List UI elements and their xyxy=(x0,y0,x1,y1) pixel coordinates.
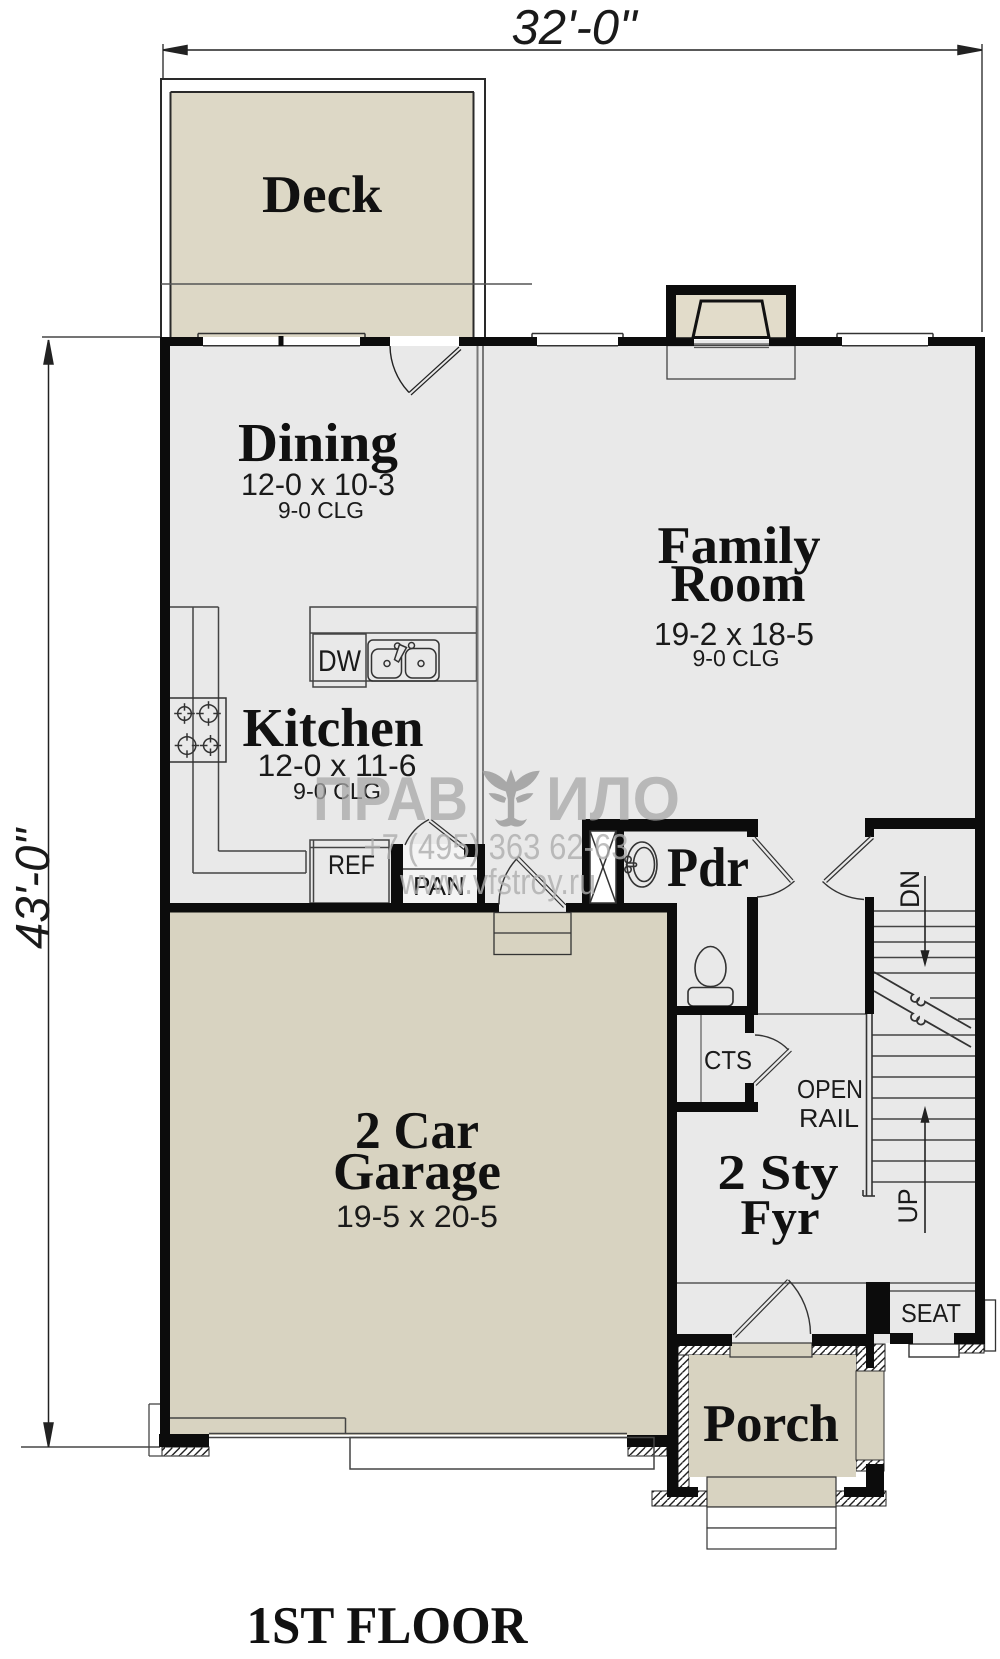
svg-text:Pdr: Pdr xyxy=(667,837,749,899)
svg-text:ИЛО: ИЛО xyxy=(546,765,680,834)
svg-text:43'-0": 43'-0" xyxy=(7,827,60,949)
svg-text:Fyr: Fyr xyxy=(741,1189,820,1245)
svg-text:Porch: Porch xyxy=(703,1395,839,1453)
svg-text:1ST FLOOR: 1ST FLOOR xyxy=(247,1597,529,1655)
svg-text:RAIL: RAIL xyxy=(799,1103,859,1133)
svg-text:ПРАВ: ПРАВ xyxy=(313,765,468,834)
svg-text:DN: DN xyxy=(895,870,925,908)
svg-text:19-5 x 20-5: 19-5 x 20-5 xyxy=(336,1199,498,1234)
svg-text:Garage: Garage xyxy=(333,1143,501,1201)
svg-text:UP: UP xyxy=(893,1189,923,1224)
svg-text:Deck: Deck xyxy=(262,166,383,224)
svg-text:9-0 CLG: 9-0 CLG xyxy=(693,645,780,671)
svg-text:www.vfstroy.ru: www.vfstroy.ru xyxy=(399,861,596,902)
svg-text:OPEN: OPEN xyxy=(797,1074,863,1104)
svg-text:CTS: CTS xyxy=(704,1045,752,1075)
svg-text:9-0 CLG: 9-0 CLG xyxy=(278,497,364,523)
svg-text:32'-0": 32'-0" xyxy=(512,1,640,55)
svg-text:Room: Room xyxy=(671,555,806,613)
svg-text:Dining: Dining xyxy=(238,412,398,474)
svg-text:DW: DW xyxy=(318,645,362,678)
svg-text:SEAT: SEAT xyxy=(901,1298,961,1328)
